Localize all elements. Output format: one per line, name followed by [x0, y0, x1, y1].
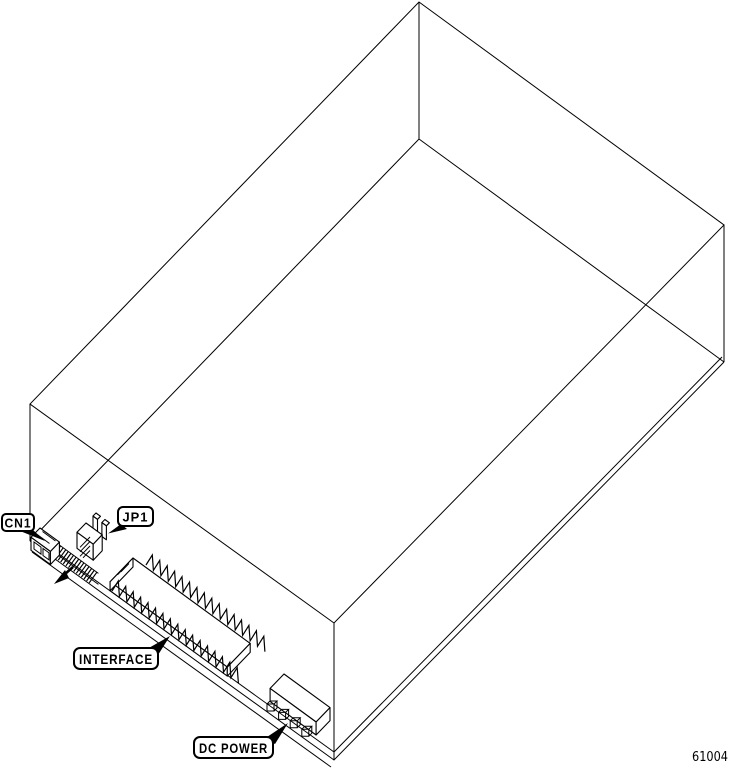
dc-power-label: DC POWER	[199, 740, 268, 756]
figure-canvas: CN1 JP1 INTERFACE DC POWER 61004	[0, 0, 730, 773]
cn1-label: CN1	[5, 516, 32, 531]
part-number: 61004	[692, 750, 728, 765]
interface-label: INTERFACE	[79, 651, 153, 667]
jp1-label: JP1	[123, 510, 149, 525]
drive-isometric-drawing: CN1 JP1 INTERFACE DC POWER 61004	[0, 0, 730, 773]
